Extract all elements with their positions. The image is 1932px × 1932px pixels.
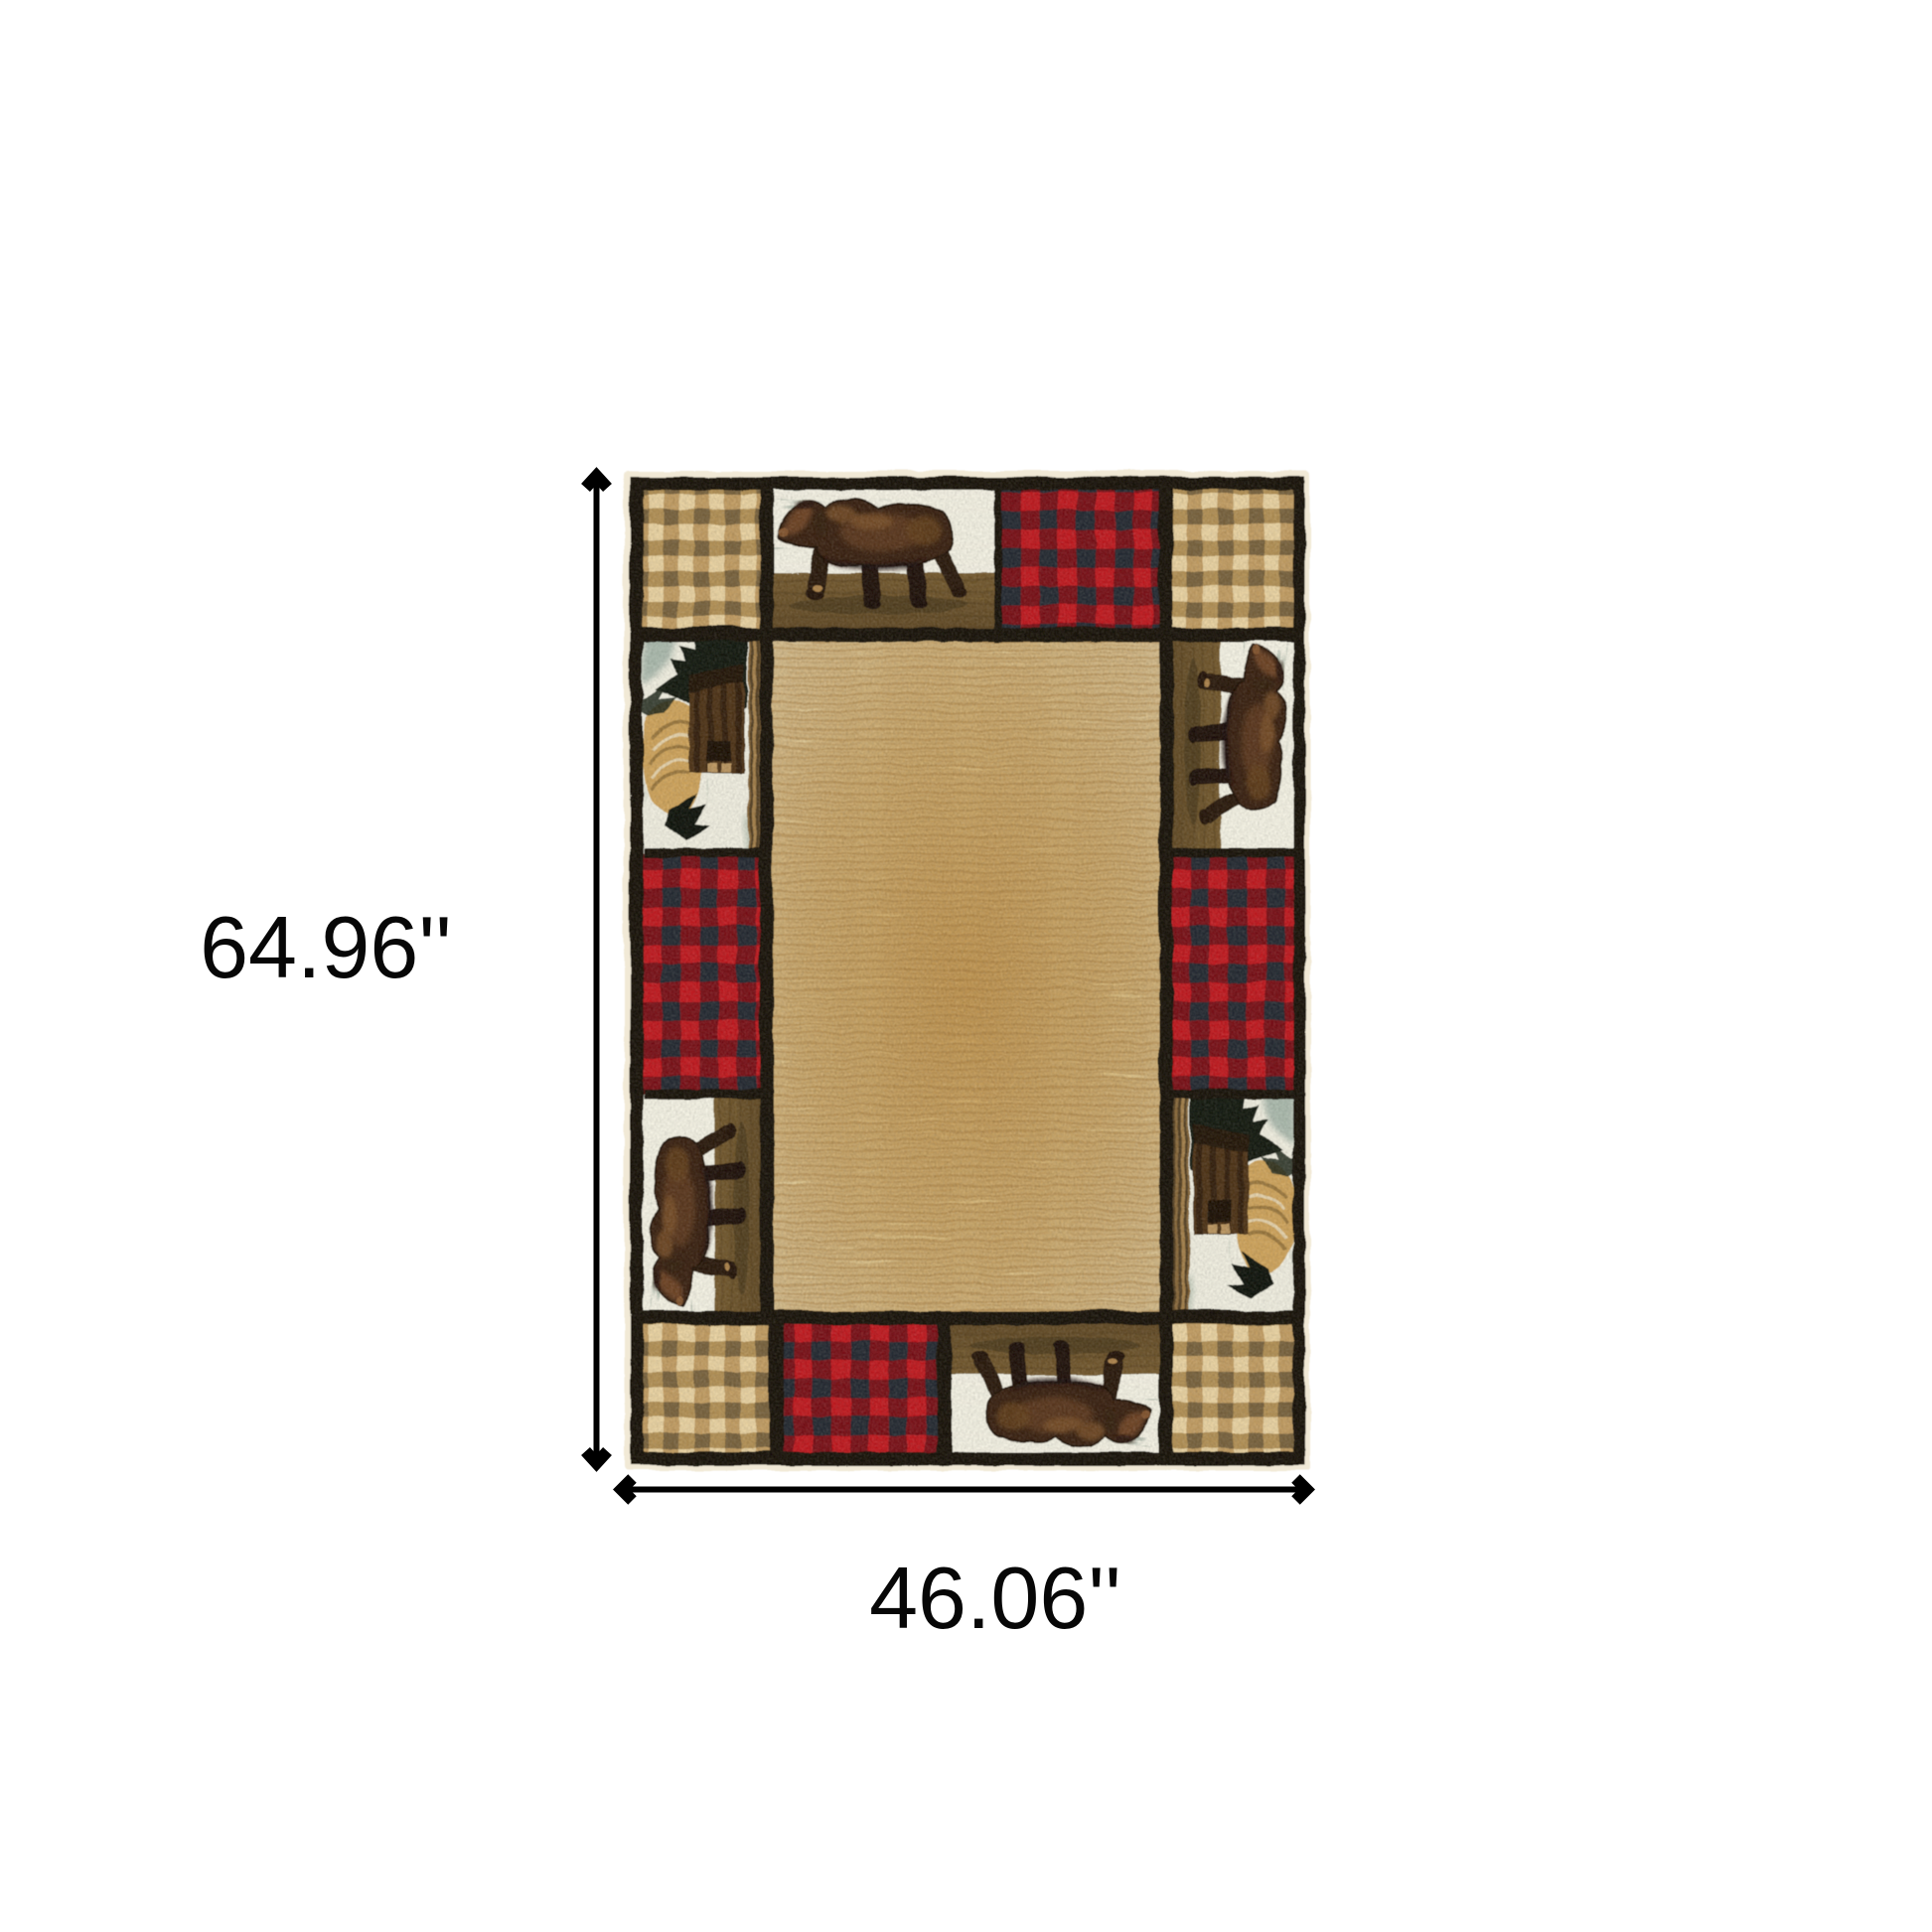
svg-text:46.06'': 46.06'' xyxy=(869,1549,1121,1647)
svg-text:64.96'': 64.96'' xyxy=(200,898,452,996)
